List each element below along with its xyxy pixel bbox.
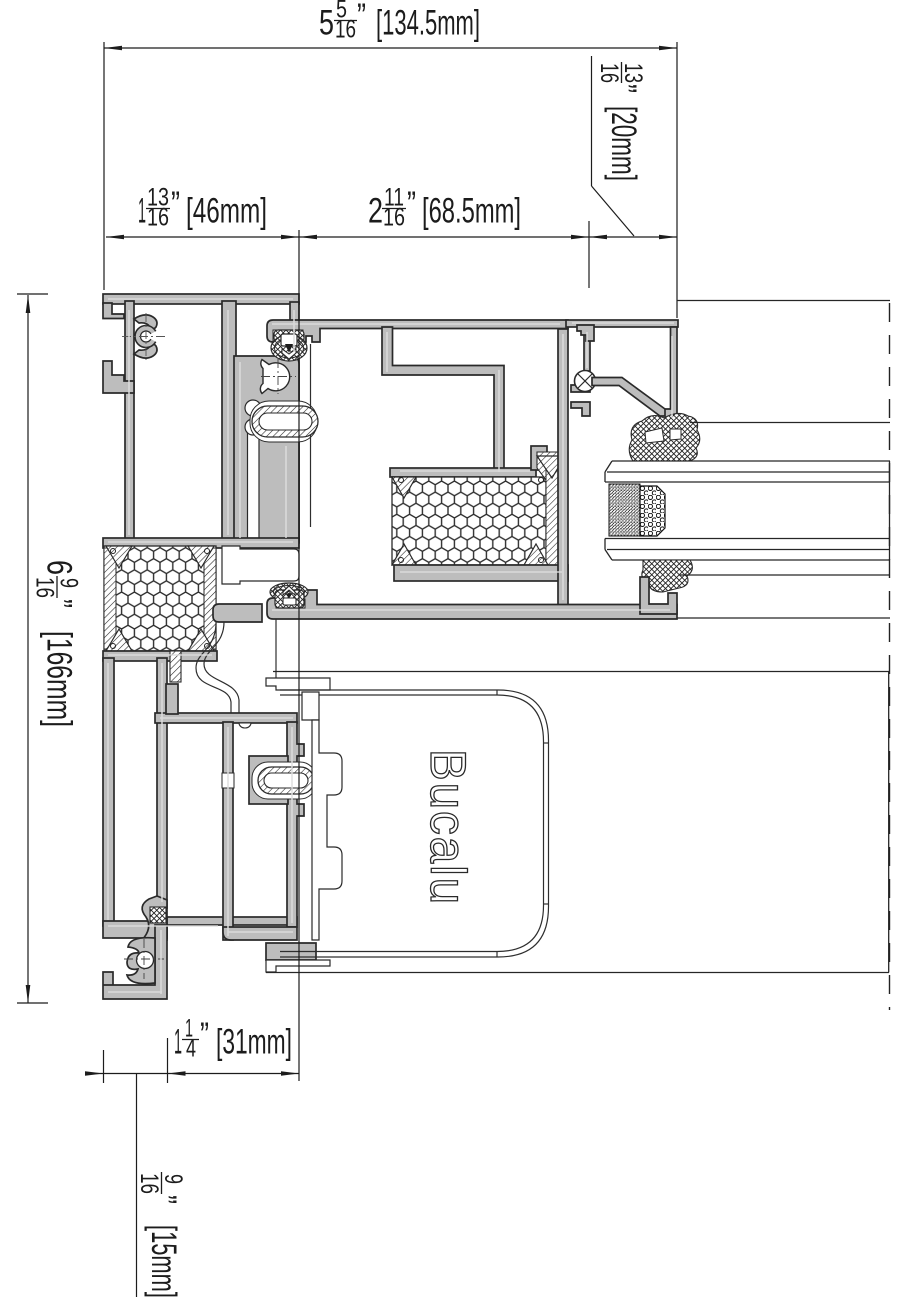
svg-text:1: 1 bbox=[138, 192, 146, 231]
svg-text:16: 16 bbox=[147, 204, 169, 232]
svg-text:[15mm]: [15mm] bbox=[144, 1225, 183, 1298]
svg-text:4: 4 bbox=[186, 1035, 196, 1063]
svg-text:5: 5 bbox=[319, 4, 334, 43]
svg-text:16: 16 bbox=[135, 1173, 163, 1194]
svg-text:[134.5mm]: [134.5mm] bbox=[376, 4, 480, 43]
svg-text:[166mm]: [166mm] bbox=[40, 631, 79, 727]
svg-text:16: 16 bbox=[595, 63, 623, 83]
svg-text:1: 1 bbox=[174, 1023, 182, 1062]
svg-text:”: ” bbox=[200, 1016, 209, 1055]
svg-text:”: ” bbox=[171, 185, 180, 224]
svg-text:”: ” bbox=[40, 599, 79, 608]
svg-text:6: 6 bbox=[40, 560, 79, 575]
svg-text:[31mm]: [31mm] bbox=[216, 1023, 292, 1062]
svg-text:16: 16 bbox=[31, 577, 59, 598]
svg-text:”: ” bbox=[144, 1195, 183, 1204]
svg-text:[68.5mm]: [68.5mm] bbox=[422, 192, 521, 231]
svg-text:[20mm]: [20mm] bbox=[604, 106, 643, 181]
svg-text:16: 16 bbox=[383, 204, 405, 232]
svg-text:Bucalu: Bucalu bbox=[420, 749, 476, 906]
svg-text:2: 2 bbox=[368, 192, 383, 231]
svg-text:”: ” bbox=[357, 0, 366, 36]
svg-text:16: 16 bbox=[335, 16, 356, 44]
svg-text:”: ” bbox=[407, 185, 416, 224]
svg-text:[46mm]: [46mm] bbox=[186, 192, 267, 231]
svg-text:”: ” bbox=[604, 84, 643, 93]
